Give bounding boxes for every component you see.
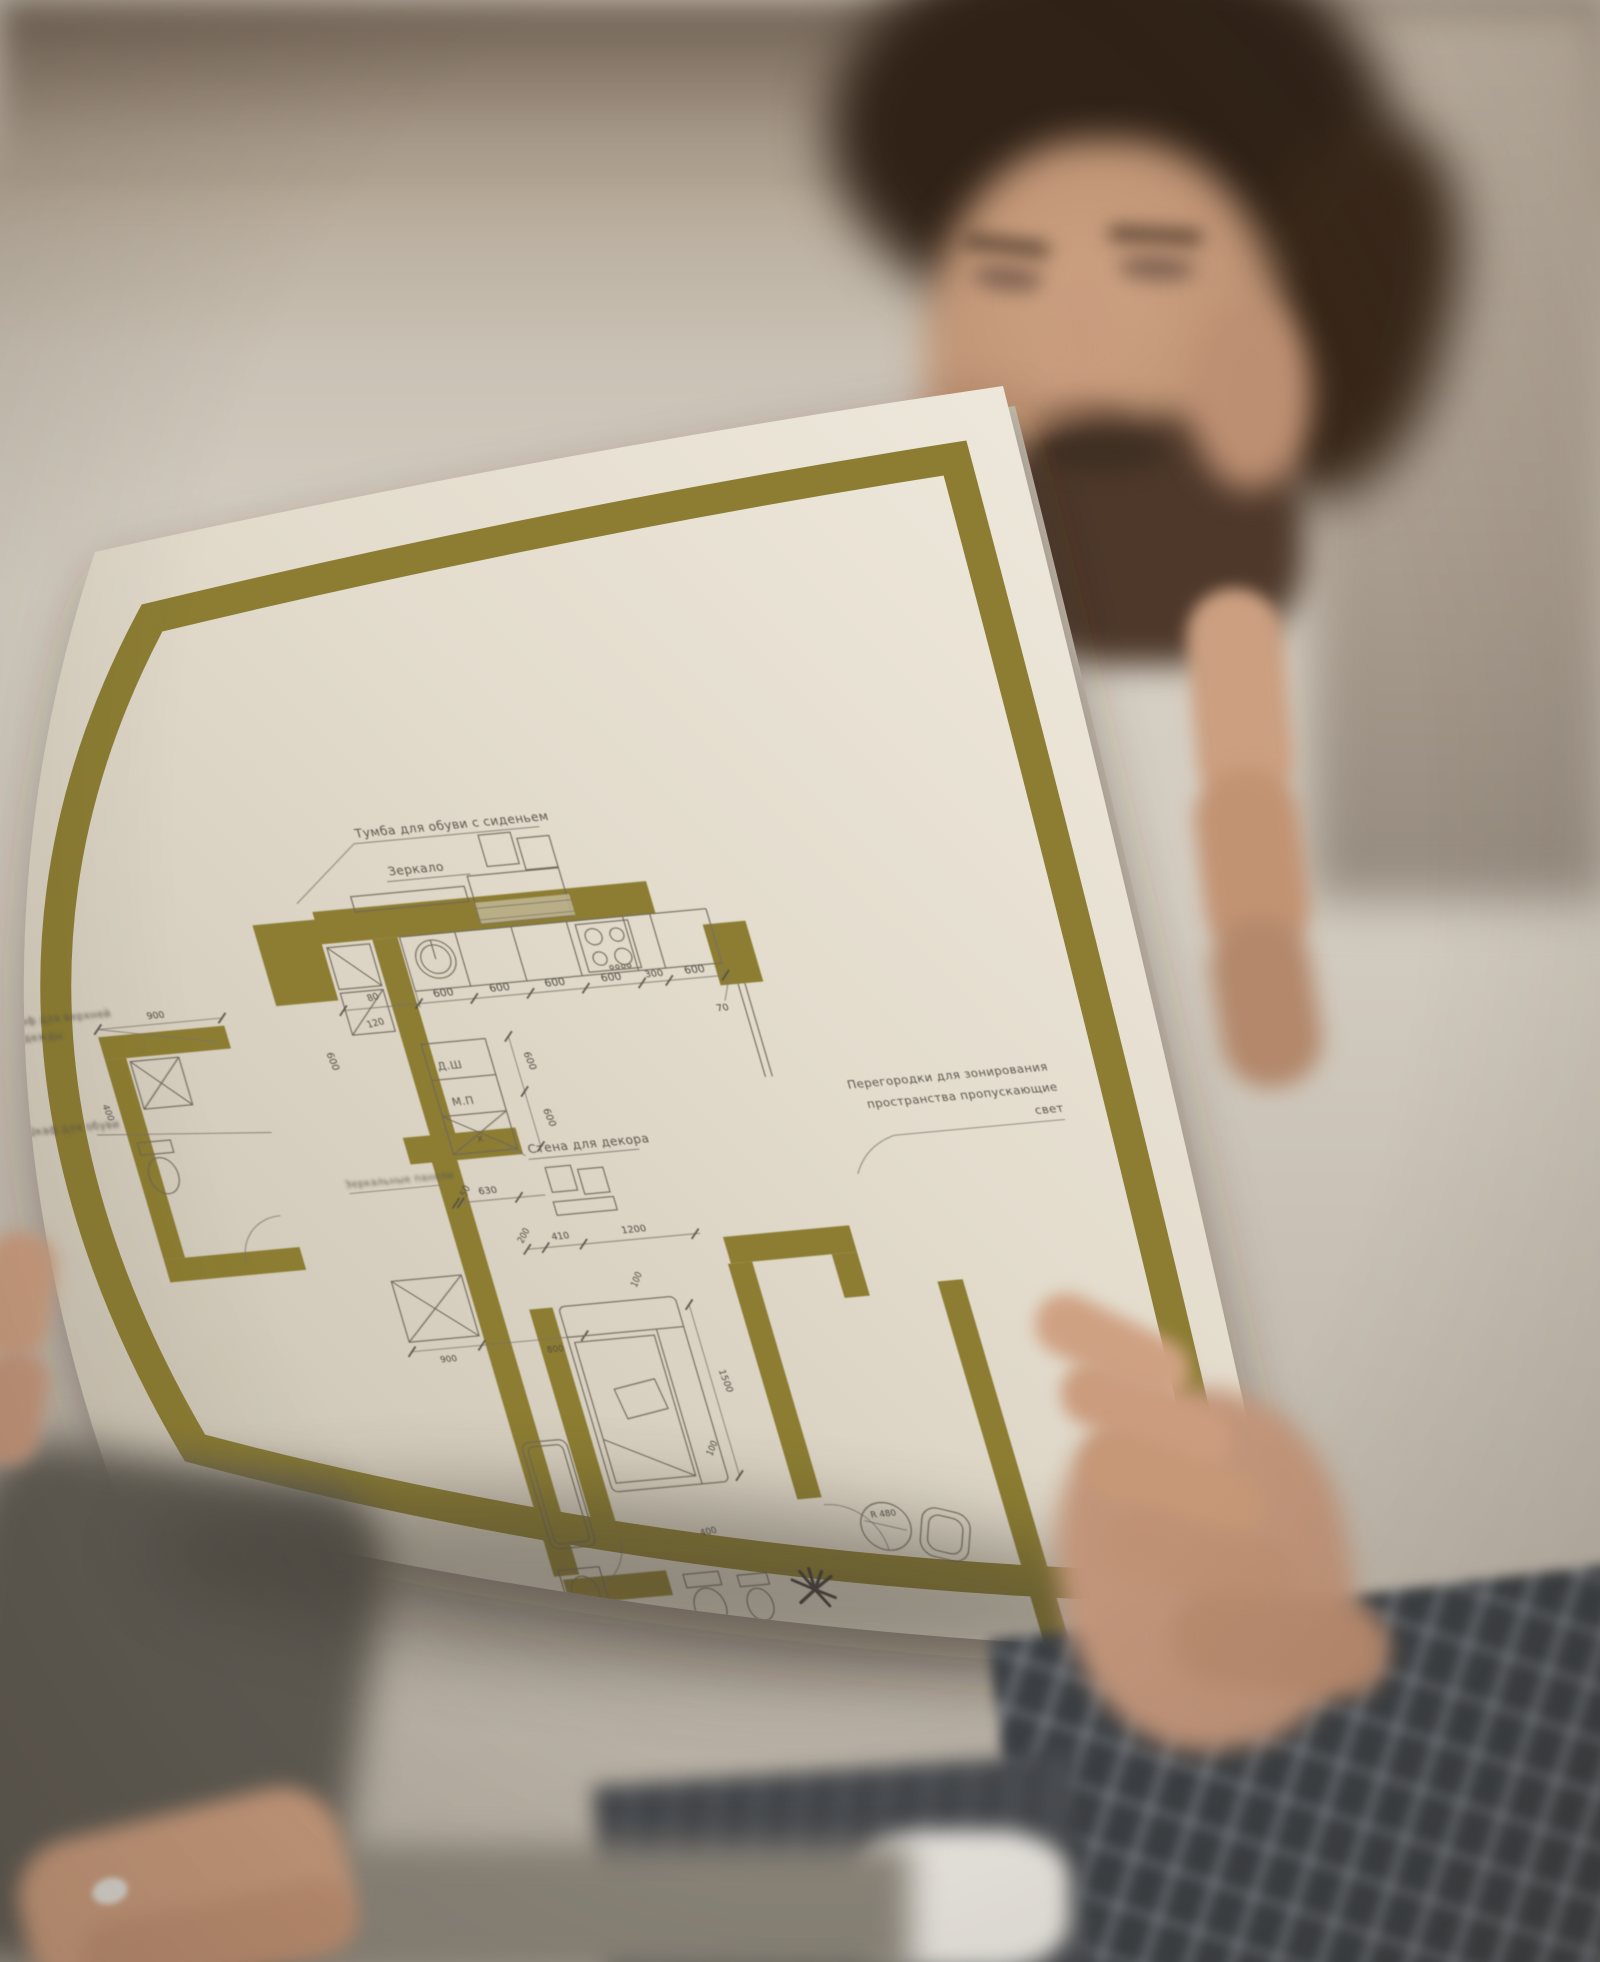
photo-scene: 600 600 600 600 300 600 70 80 120 600 Д.…	[0, 0, 1600, 1962]
vignette	[0, 0, 1600, 1962]
